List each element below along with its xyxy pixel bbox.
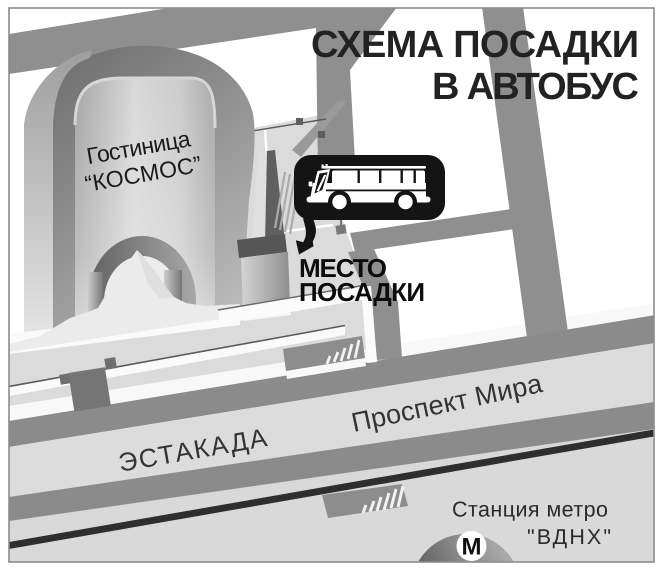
- svg-text:СХЕМА ПОСАДКИ: СХЕМА ПОСАДКИ: [311, 24, 639, 66]
- svg-text:"ВДНХ": "ВДНХ": [527, 525, 611, 549]
- svg-text:М: М: [462, 534, 482, 561]
- svg-text:ПОСАДКИ: ПОСАДКИ: [299, 277, 425, 307]
- svg-text:В АВТОБУС: В АВТОБУС: [432, 66, 639, 108]
- svg-text:Станция метро: Станция метро: [452, 498, 608, 522]
